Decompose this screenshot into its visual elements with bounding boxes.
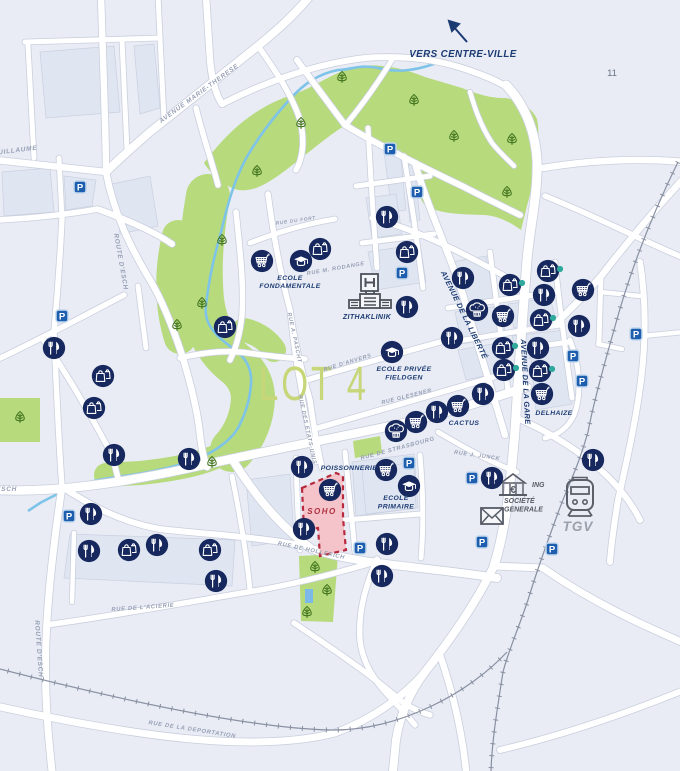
svg-text:ZITHAKLINIK: ZITHAKLINIK <box>342 314 392 321</box>
svg-text:FONDAMENTALE: FONDAMENTALE <box>259 283 320 290</box>
svg-text:ECOLE: ECOLE <box>277 275 302 282</box>
svg-text:ING: ING <box>532 482 545 489</box>
svg-text:€: € <box>510 485 516 496</box>
svg-text:GENERALE: GENERALE <box>504 507 543 514</box>
svg-text:PRIMAIRE: PRIMAIRE <box>378 504 414 511</box>
svg-text:ECOLE: ECOLE <box>383 495 408 502</box>
svg-text:CACTUS: CACTUS <box>449 420 480 427</box>
svg-text:POISSONNERIE: POISSONNERIE <box>321 465 378 472</box>
svg-text:ECOLE PRIVÉE: ECOLE PRIVÉE <box>376 364 431 373</box>
svg-text:FIELDGEN: FIELDGEN <box>385 375 423 382</box>
svg-text:11: 11 <box>607 68 617 79</box>
svg-text:SOCIÉTÉ: SOCIÉTÉ <box>504 496 535 505</box>
svg-text:ROUTE D'ESCH: ROUTE D'ESCH <box>0 486 17 493</box>
svg-text:SOHO: SOHO <box>307 507 337 516</box>
svg-text:TGV: TGV <box>563 519 594 534</box>
svg-text:DELHAIZE: DELHAIZE <box>535 410 572 417</box>
svg-text:VERS CENTRE-VILLE: VERS CENTRE-VILLE <box>409 49 517 60</box>
